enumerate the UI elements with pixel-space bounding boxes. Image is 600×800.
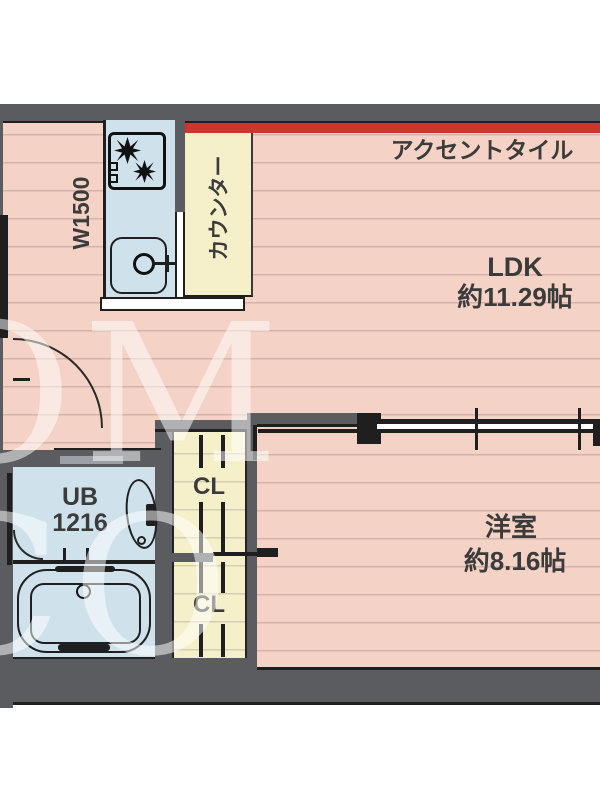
sink-faucet-line (152, 262, 175, 265)
washbasin-tap (146, 504, 156, 526)
closet-door-line (221, 562, 225, 593)
bathtub-top-bar (55, 566, 115, 572)
closet-door-line (199, 502, 203, 553)
counter-base (100, 297, 245, 311)
sink-faucet-tick (166, 255, 169, 272)
closet-door-line (221, 435, 225, 468)
closet-corner-line (253, 425, 257, 460)
closet-lower-label: CL (181, 592, 237, 617)
unit-bath-size-label: 1216 (38, 510, 122, 536)
floorplan: アクセントタイル LDK 約11.29帖 洋室 約8.16帖 CL CL UB … (0, 0, 600, 800)
western-door-stub (257, 548, 278, 557)
entrance-door-leaf (0, 215, 8, 338)
closet-door-line (199, 435, 203, 468)
kitchen-counter-gap-wall (175, 120, 185, 212)
closet-door-line (221, 624, 225, 657)
bath-door-tick (86, 548, 89, 562)
washroom-door-sill (60, 456, 123, 464)
closet-divider-line (213, 552, 257, 556)
bathtub-faucet-icon (76, 584, 91, 599)
closet-top-wall (155, 420, 257, 432)
bath-door-tick (63, 548, 66, 562)
window-tick (578, 408, 581, 450)
washbasin-drain (137, 536, 146, 545)
washroom-wall-line (54, 448, 161, 450)
left-wall-tick (13, 378, 30, 381)
stove-burner-icon (114, 137, 141, 164)
closet-divider-wall (155, 553, 213, 562)
western-room-label: 洋室 (431, 514, 591, 541)
counter-label: カウンター (209, 128, 233, 288)
western-room-area-label: 約8.16帖 (425, 548, 600, 575)
top-wall (0, 104, 600, 123)
stove-burner-icon (133, 160, 156, 183)
kitchen-width-label: W1500 (69, 153, 95, 273)
window-tick (475, 408, 478, 450)
left-wall-shaft-line (7, 473, 12, 565)
accent-tile-label: アクセントタイル (372, 138, 592, 162)
window-gap (377, 424, 600, 429)
closet-door-line (199, 562, 203, 593)
bathtub-bottom-bar (58, 644, 110, 651)
unit-bath-label: UB (40, 484, 120, 510)
window-end-mark (593, 420, 600, 446)
stove-grill-icon (109, 162, 118, 171)
closet-door-line (221, 502, 225, 553)
closet-body (172, 432, 247, 658)
bath-divider-line (13, 560, 155, 564)
ldk-area-label: 約11.29帖 (420, 284, 600, 311)
stove-grill-icon (109, 174, 118, 183)
sliding-door-track (258, 429, 600, 433)
kitchen-pass-strip (175, 212, 185, 298)
closet-right-wall (247, 427, 257, 663)
ldk-room-label: LDK (435, 253, 595, 281)
closet-door-line (199, 624, 203, 657)
accent-tile-strip (185, 123, 600, 133)
closet-upper-label: CL (181, 474, 237, 499)
